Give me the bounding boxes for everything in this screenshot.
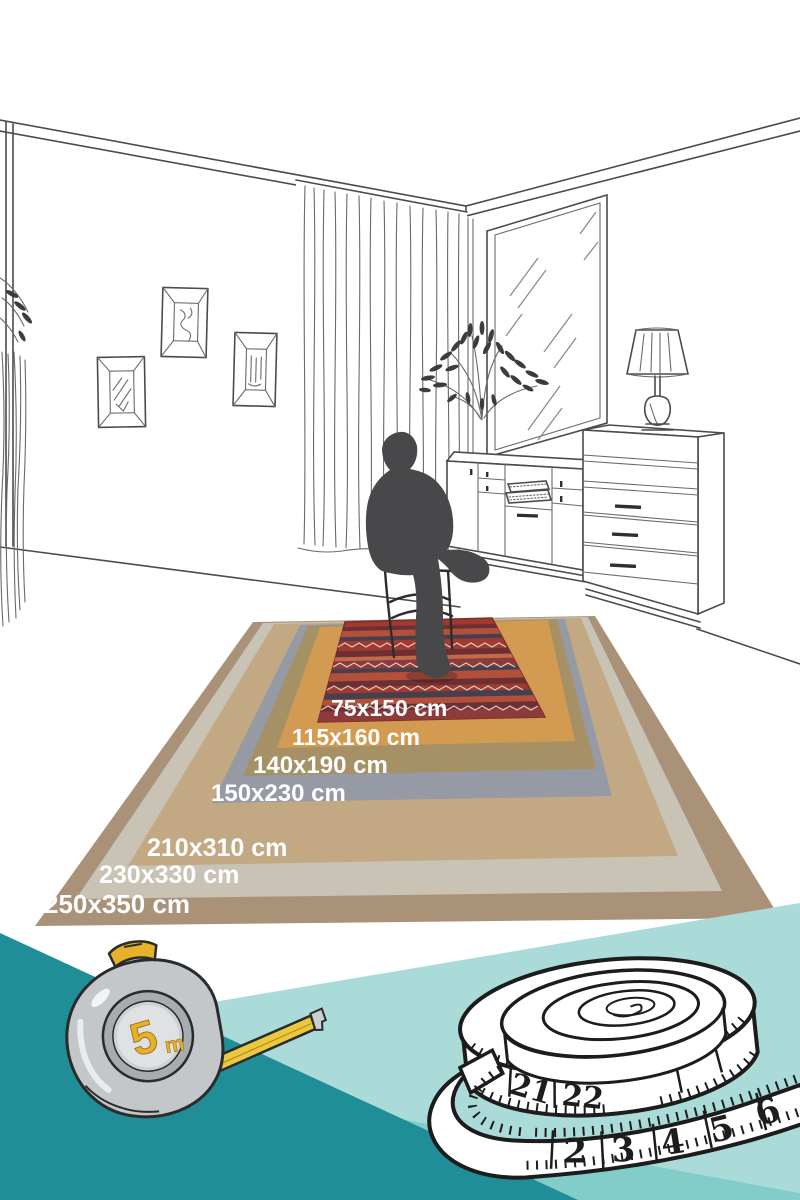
label-210x310: 210x310 cm xyxy=(147,834,287,862)
books-on-shelf xyxy=(506,481,551,503)
picture-frame-left xyxy=(97,357,145,428)
window xyxy=(487,195,607,457)
tailor-tape-number-3: 3 xyxy=(610,1129,636,1171)
shelf-cabinet xyxy=(583,425,724,628)
label-150x230: 150x230 cm xyxy=(211,780,346,807)
tailor-tape-number-2: 2 xyxy=(563,1131,587,1171)
left-plant-and-curtain xyxy=(0,278,33,626)
table-lamp xyxy=(627,328,688,430)
label-230x330: 230x330 cm xyxy=(99,861,239,889)
tailor-tape-number-22: 22 xyxy=(560,1078,605,1117)
label-250x350: 250x350 cm xyxy=(44,889,190,919)
rug-size-guide-illustration: 75x150 cm 115x160 cm 140x190 cm 150x230 … xyxy=(0,0,800,1200)
label-140x190: 140x190 cm xyxy=(253,752,388,779)
label-75x150: 75x150 cm xyxy=(331,695,447,721)
wall-frames xyxy=(97,287,277,427)
picture-frame-middle xyxy=(161,287,208,357)
bottom-banner: 5 m 21 22 xyxy=(0,903,800,1200)
picture-frame-right xyxy=(233,332,277,406)
right-floor-line xyxy=(697,629,800,664)
label-115x160: 115x160 cm xyxy=(292,724,420,750)
